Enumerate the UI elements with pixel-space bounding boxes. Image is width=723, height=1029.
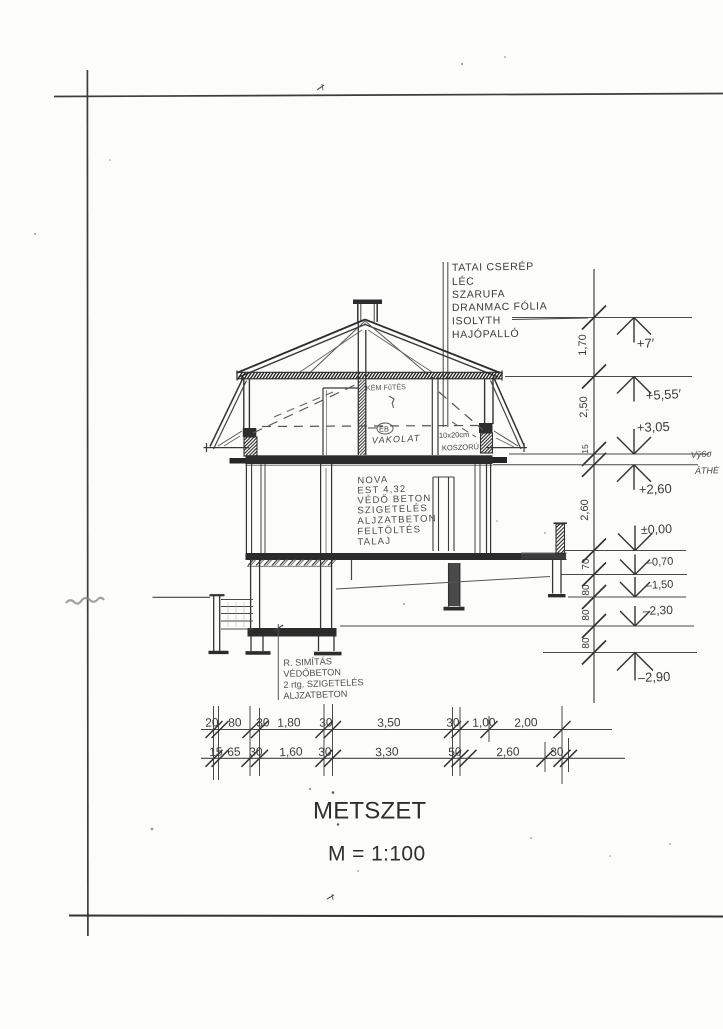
svg-text:3,50: 3,50 (377, 715, 401, 730)
svg-text:KOSZORÚ: KOSZORÚ (442, 442, 479, 452)
svg-text:50: 50 (448, 745, 462, 759)
svg-text:–2,90: –2,90 (638, 669, 671, 685)
svg-text:LÉC: LÉC (452, 275, 475, 288)
svg-text:1,80: 1,80 (277, 715, 301, 730)
svg-text:TATAI CSERÉP: TATAI CSERÉP (452, 260, 534, 274)
svg-text:20: 20 (205, 715, 219, 729)
svg-text:KÉM FűTÉS: KÉM FűTÉS (366, 382, 406, 392)
svg-text:DRANMAC FÓLIA: DRANMAC FÓLIA (452, 299, 548, 314)
svg-text:65: 65 (227, 745, 241, 759)
svg-text:Vȳ6σ: Vȳ6σ (690, 449, 712, 460)
svg-text:2,60: 2,60 (579, 499, 591, 520)
svg-text:10x20cm: 10x20cm (439, 430, 470, 440)
svg-text:2,60: 2,60 (496, 744, 520, 759)
svg-text:ÁTHĖ: ÁTHĖ (694, 465, 720, 476)
svg-text:30: 30 (550, 745, 564, 759)
svg-text:30: 30 (256, 715, 270, 729)
svg-text:30: 30 (249, 745, 263, 759)
svg-text:±0,00: ±0,00 (641, 522, 673, 537)
svg-text:15: 15 (209, 745, 223, 759)
svg-text:M = 1:100: M = 1:100 (328, 843, 426, 866)
svg-text:–1,50: –1,50 (646, 579, 674, 592)
svg-text:80: 80 (581, 637, 592, 649)
svg-text:80: 80 (581, 584, 592, 596)
svg-text:2,50: 2,50 (578, 396, 590, 417)
svg-text:1,00: 1,00 (472, 715, 496, 730)
svg-text:EB: EB (379, 425, 389, 434)
svg-text:–2,30: –2,30 (643, 603, 674, 618)
svg-text:METSZET: METSZET (313, 798, 427, 825)
svg-text:30: 30 (318, 745, 332, 759)
svg-text:2,00: 2,00 (514, 715, 538, 730)
svg-text:VÉDŐBETON: VÉDŐBETON (283, 667, 341, 679)
svg-text:1,70: 1,70 (577, 334, 589, 355)
svg-text:+2,60: +2,60 (639, 481, 672, 497)
svg-text:SZARUFA: SZARUFA (452, 288, 506, 301)
svg-text:80: 80 (228, 715, 242, 729)
svg-text:+3,05: +3,05 (637, 419, 670, 435)
svg-text:30: 30 (319, 715, 333, 729)
svg-text:TALAJ: TALAJ (357, 536, 391, 548)
svg-text:70: 70 (581, 558, 592, 570)
svg-text:15: 15 (580, 444, 590, 454)
svg-text:1,60: 1,60 (279, 744, 303, 759)
svg-text:80: 80 (581, 609, 592, 621)
svg-text:–0,70: –0,70 (646, 556, 674, 569)
svg-text:R. SIMÍTÁS: R. SIMÍTÁS (283, 656, 332, 668)
svg-text:+7′: +7′ (637, 335, 655, 351)
svg-text:3,30: 3,30 (375, 744, 399, 759)
svg-text:30: 30 (446, 715, 460, 729)
svg-text:HAJÓPALLÓ: HAJÓPALLÓ (452, 327, 520, 341)
svg-text:ISOLYTH: ISOLYTH (452, 315, 501, 328)
svg-text:+5,55′: +5,55′ (645, 386, 682, 403)
